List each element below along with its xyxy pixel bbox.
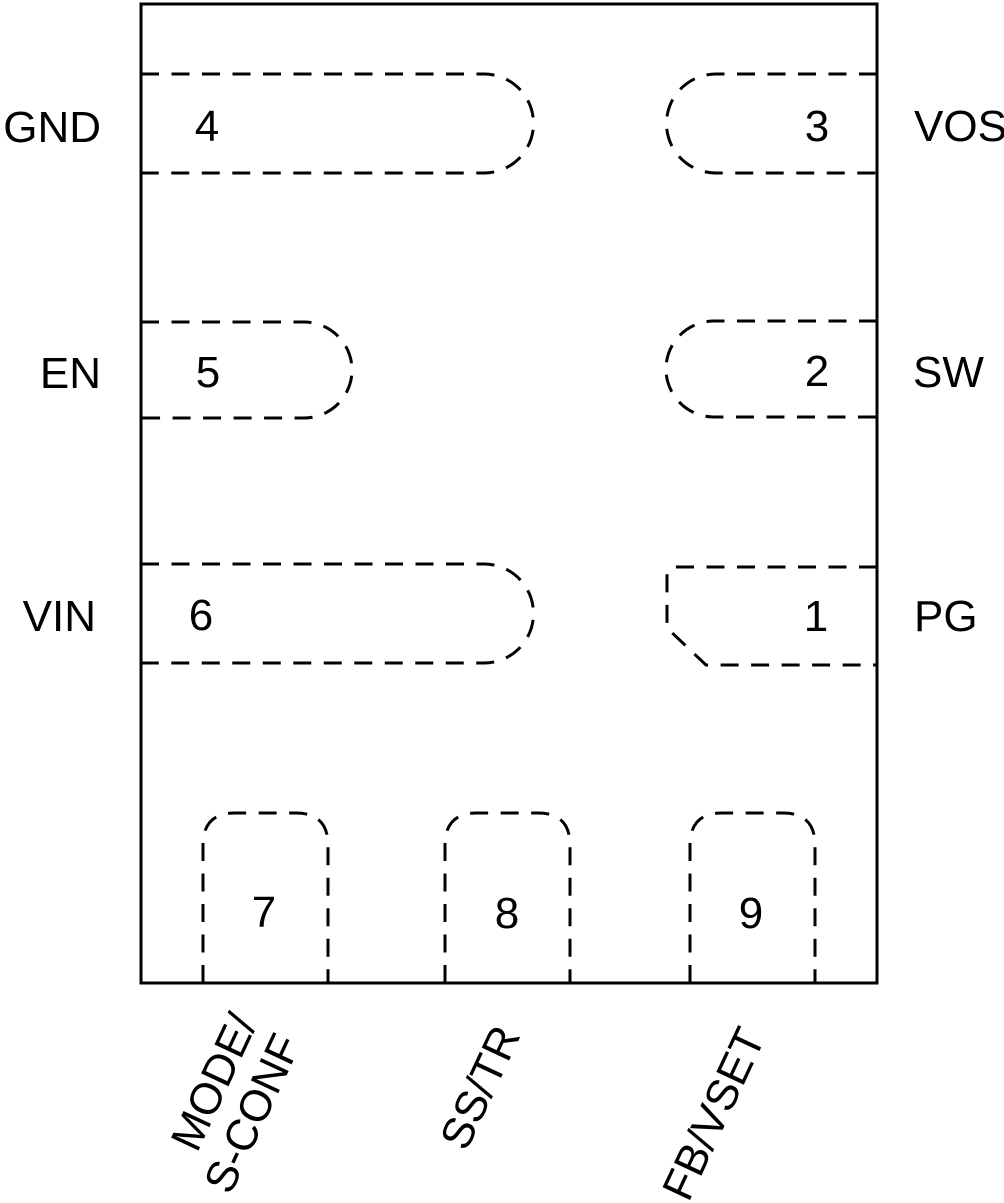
pin-number-3: 3 — [805, 102, 829, 151]
pin-label-mode-sconf: MODE/ S-CONF — [151, 1006, 311, 1201]
pin-pad-5 — [141, 322, 352, 418]
pin-label-sstr-text: SS/TR — [431, 1019, 530, 1157]
pin-label-fbvset: FB/VSET — [653, 1021, 775, 1203]
pin-label-sw: SW — [913, 348, 984, 397]
pin-number-6: 6 — [189, 591, 213, 640]
pin-number-2: 2 — [805, 347, 829, 396]
pinout-svg: 4 5 6 3 2 1 7 8 9 GND EN VIN VOS SW PG M… — [0, 0, 1004, 1203]
pin-label-vin: VIN — [23, 592, 96, 641]
pin-number-7: 7 — [252, 888, 276, 937]
pin-label-fbvset-text: FB/VSET — [653, 1021, 775, 1203]
pin-pad-1 — [667, 567, 877, 665]
pin-pad-2 — [666, 321, 877, 417]
pin-label-vos: VOS — [914, 102, 1004, 151]
pin-label-pg: PG — [914, 592, 978, 641]
pin-number-9: 9 — [739, 889, 763, 938]
pin-number-1: 1 — [804, 592, 828, 641]
package-outline — [141, 4, 877, 983]
pin-number-5: 5 — [196, 348, 220, 397]
pin-label-en: EN — [40, 349, 101, 398]
pin-number-4: 4 — [195, 102, 219, 151]
pin-number-8: 8 — [495, 889, 519, 938]
pin-label-sstr: SS/TR — [431, 1019, 530, 1157]
pin-label-gnd: GND — [3, 103, 101, 152]
pin-pad-3 — [667, 74, 878, 173]
pinout-diagram: 4 5 6 3 2 1 7 8 9 GND EN VIN VOS SW PG M… — [0, 0, 1004, 1203]
